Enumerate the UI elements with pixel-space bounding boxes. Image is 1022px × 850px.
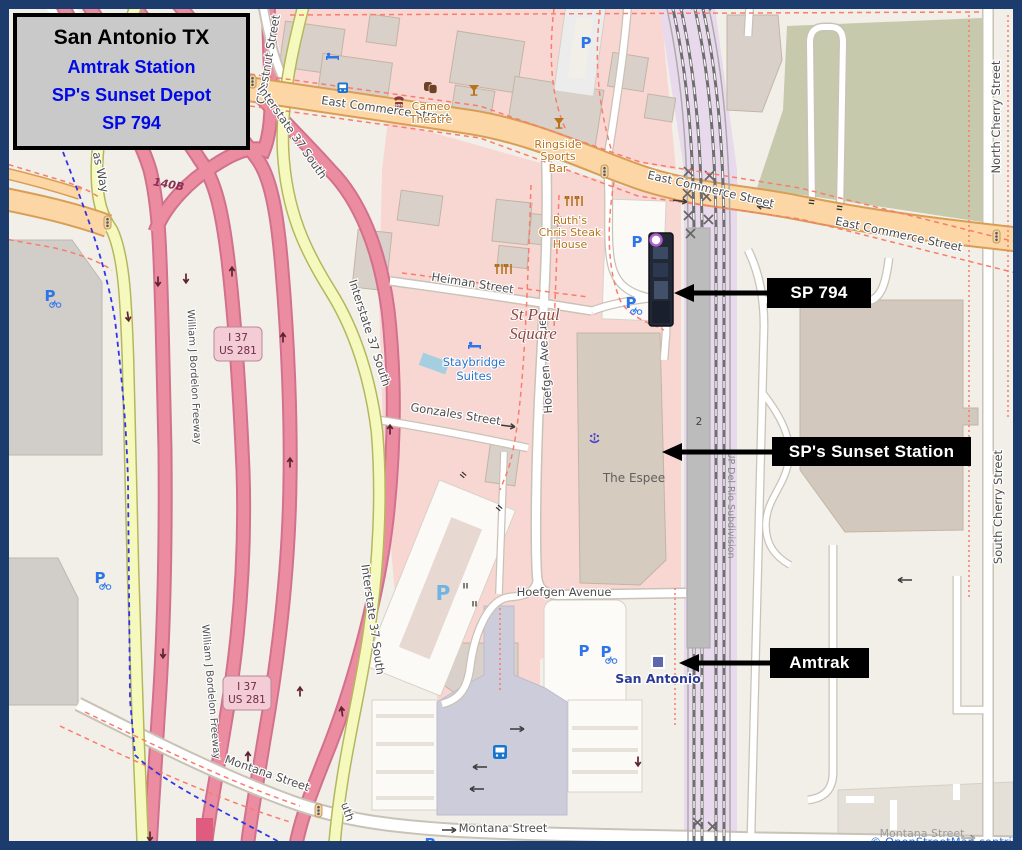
svg-text:I 37: I 37: [237, 681, 257, 693]
svg-text:Suites: Suites: [456, 369, 491, 383]
svg-text:US 281: US 281: [228, 694, 266, 706]
street-label: South Cherry Street: [991, 449, 1005, 564]
parking-icon: P: [425, 835, 436, 850]
rail-station-icon: [652, 656, 664, 668]
title-card: San Antonio TX Amtrak Station SP's Sunse…: [13, 13, 250, 150]
svg-text:Square: Square: [509, 324, 557, 343]
svg-text:Staybridge: Staybridge: [443, 355, 506, 369]
svg-text:US 281: US 281: [219, 345, 257, 357]
street-label: Montana Street: [459, 821, 548, 835]
i37-shield: I 37 US 281: [214, 327, 262, 361]
map-subtitle: SP's Sunset Depot: [17, 85, 246, 106]
svg-text:House: House: [553, 238, 588, 251]
parking-icon: P: [579, 642, 590, 660]
svg-text:The Espee: The Espee: [602, 471, 665, 485]
bus-station-icon: [493, 745, 507, 759]
bus-stop-icon: [338, 83, 349, 94]
map-subtitle: Amtrak Station: [17, 57, 246, 78]
svg-text:Cameo: Cameo: [412, 100, 451, 113]
callout-amtrak: Amtrak: [770, 648, 869, 678]
svg-text:San Antonio: San Antonio: [615, 671, 701, 686]
svg-text:St Paul: St Paul: [510, 305, 560, 324]
callout-sp794-label: SP 794: [790, 283, 847, 303]
svg-text:Bar: Bar: [549, 162, 568, 175]
street-label: North Cherry Street: [989, 60, 1003, 173]
svg-text:I 37: I 37: [228, 332, 248, 344]
svg-text:Theatre: Theatre: [409, 113, 453, 126]
parking-area-icon: P: [436, 581, 451, 605]
i37-shield: I 37 US 281: [223, 676, 271, 710]
map-subtitle: SP 794: [17, 113, 246, 134]
map-title: San Antonio TX: [17, 26, 246, 50]
callout-sunset-label: SP's Sunset Station: [789, 442, 955, 462]
street-label: Hoefgen Avenue: [517, 585, 612, 599]
parking-icon: P: [581, 34, 592, 52]
callout-amtrak-label: Amtrak: [789, 653, 849, 673]
parking-icon: P: [632, 233, 643, 251]
map-canvas[interactable]: sos P P P P P P P P P I 37 US 281 I 37 U…: [0, 0, 1022, 850]
photo-marker-icon: [651, 235, 662, 246]
track-number: 2: [696, 416, 703, 428]
sp794-locomotive-photo: [649, 233, 673, 326]
rail-line-label: UP Del Rio Subdivision: [725, 451, 736, 558]
osm-attribution-link[interactable]: © OpenStreetMap contrib: [870, 835, 1019, 849]
callout-sunset-station: SP's Sunset Station: [772, 437, 971, 466]
callout-sp794: SP 794: [767, 278, 871, 308]
